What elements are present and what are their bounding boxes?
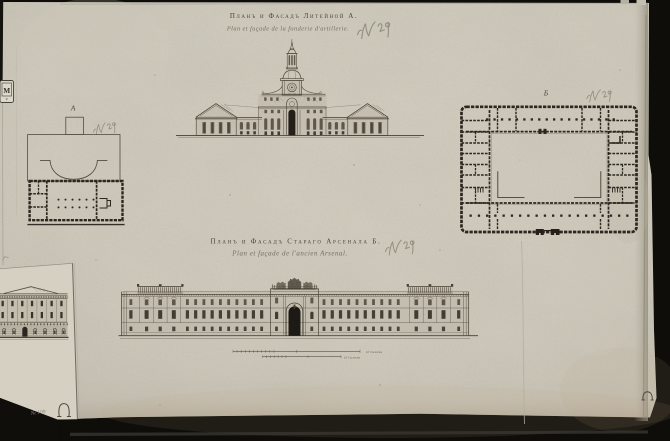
svg-text:Plan et façade de l'ancien Ars: Plan et façade de l'ancien Arsenal. (231, 251, 348, 258)
svg-text:Планъ и Фасадъ Стараго Арсенал: Планъ и Фасадъ Стараго Арсенала Б. (210, 238, 381, 246)
svg-text:Plan et façade de la fonderie: Plan et façade de la fonderie d'artiller… (226, 26, 349, 33)
svg-text:10 Саженъ: 10 Саженъ (344, 356, 361, 360)
svg-text:M: M (3, 87, 10, 95)
svg-text:Б: Б (543, 89, 549, 98)
svg-text:А: А (70, 104, 76, 113)
svg-text:Планъ и Фасадъ Литейной А.: Планъ и Фасадъ Литейной А. (230, 12, 358, 20)
svg-text:10 Саженъ: 10 Саженъ (366, 350, 383, 354)
